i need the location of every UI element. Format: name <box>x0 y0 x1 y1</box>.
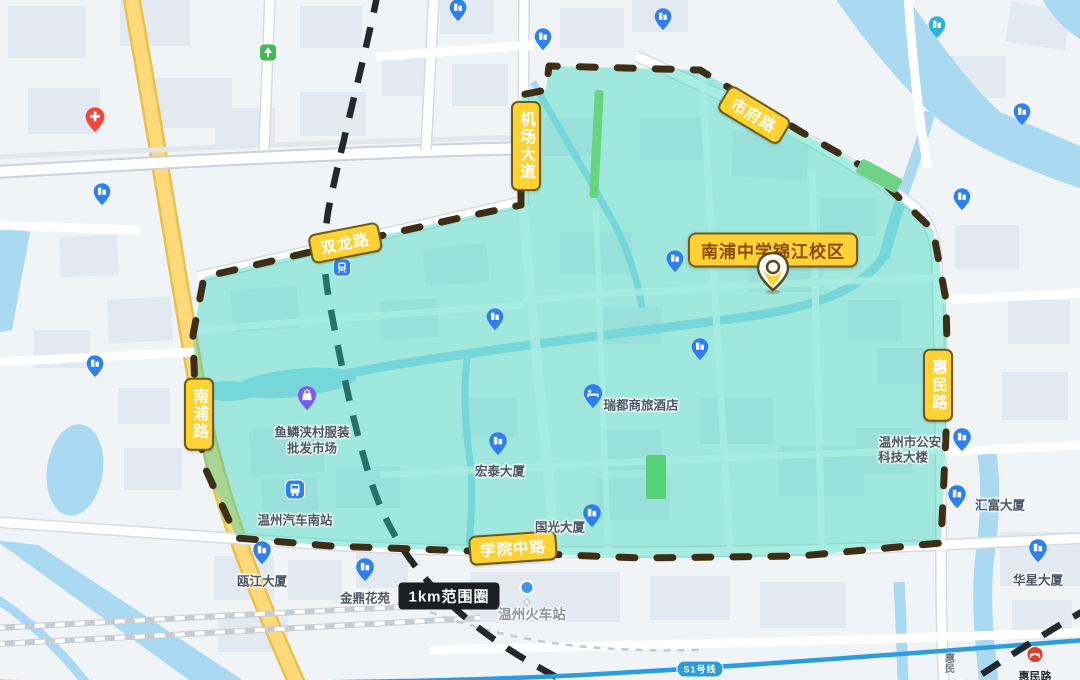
road-text-huimin-vertical: 惠民 <box>941 653 956 673</box>
poi-building-pin-icon[interactable] <box>355 557 375 587</box>
road-badge-jichang-dadao: 机场大道 <box>511 101 541 191</box>
poi-label-bus-station: 温州汽车南站 <box>257 510 332 529</box>
poi-building-pin-icon[interactable] <box>486 307 505 336</box>
poi-label-huifu: 汇富大厦 <box>975 495 1025 514</box>
poi-park-pin-icon[interactable] <box>928 15 947 44</box>
poi-building-pin-icon[interactable] <box>252 540 272 570</box>
poi-building-pin-icon[interactable] <box>1028 538 1048 568</box>
poi-label-jinding: 金鼎花苑 <box>340 588 390 607</box>
poi-label-hotel: 瑞都商旅酒店 <box>603 395 678 414</box>
poi-building-pin-icon[interactable] <box>86 354 105 383</box>
map-canvas[interactable]: 双龙路 机场大道 市府路 南浦路 惠民路 学院中路 南浦中学锦江校区 1km范围… <box>0 0 1080 680</box>
poi-label-train-station: 温州火车站 <box>498 603 566 623</box>
poi-building-pin-icon[interactable] <box>654 7 673 36</box>
poi-building-pin-icon[interactable] <box>449 0 468 27</box>
school-location-pin-icon[interactable] <box>755 251 791 300</box>
road-badge-nanpu: 南浦路 <box>184 378 214 451</box>
map-base-layer <box>0 0 1080 680</box>
poi-building-pin-icon[interactable] <box>488 431 508 461</box>
hospital-cross-pin-icon[interactable] <box>84 106 106 138</box>
metro-logo-huimin-icon[interactable] <box>1026 646 1044 669</box>
poi-label-guoguang: 国光大厦 <box>535 517 585 536</box>
poi-label-police-line2: 科技大楼 <box>878 447 928 466</box>
market-bag-pin-icon[interactable] <box>297 385 318 416</box>
bus-station-square-icon[interactable] <box>285 480 305 505</box>
poi-building-pin-icon[interactable] <box>953 187 972 216</box>
poi-building-pin-icon[interactable] <box>947 484 967 514</box>
road-badge-huimin: 惠民路 <box>923 349 953 422</box>
poi-label-huaxing: 华星大厦 <box>1013 570 1063 589</box>
poi-label-market-line2: 批发市场 <box>287 438 337 457</box>
park-tree-square-icon[interactable] <box>259 44 277 67</box>
radius-badge: 1km范围圈 <box>398 583 499 610</box>
poi-label-oujiang: 瓯江大厦 <box>237 571 287 590</box>
poi-building-pin-icon[interactable] <box>952 427 972 457</box>
s1-line-badge: S1号线 <box>676 661 723 678</box>
poi-building-pin-icon[interactable] <box>691 337 710 366</box>
poi-building-pin-icon[interactable] <box>534 27 553 56</box>
poi-building-pin-icon[interactable] <box>93 182 112 211</box>
poi-building-pin-icon[interactable] <box>1013 102 1032 131</box>
poi-label-hongtai: 宏泰大厦 <box>475 461 525 480</box>
metro-station-square-icon[interactable] <box>333 259 351 282</box>
hotel-bed-pin-icon[interactable] <box>583 383 604 414</box>
metro-station-label-huimin: 惠民路 <box>1019 668 1052 680</box>
poi-building-pin-icon[interactable] <box>666 249 685 278</box>
